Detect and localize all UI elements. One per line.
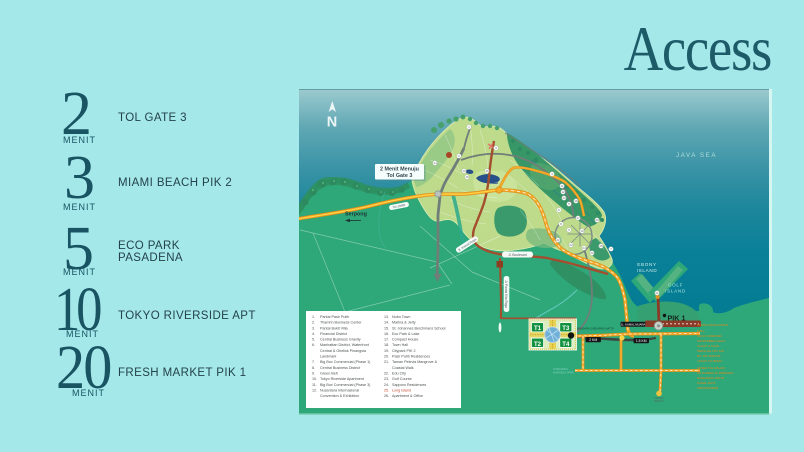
svg-text:16.: 16. (384, 332, 389, 336)
svg-text:Big Box Commercial (Phase 1): Big Box Commercial (Phase 1) (320, 360, 370, 364)
svg-text:Central Business Gravity: Central Business Gravity (320, 338, 361, 342)
svg-text:JL. KAMAL MUARA: JL. KAMAL MUARA (621, 323, 646, 327)
svg-text:Nusantara Internasional: Nusantara Internasional (320, 388, 359, 392)
svg-text:4.: 4. (312, 332, 315, 336)
svg-text:PIK 1: PIK 1 (668, 314, 686, 323)
svg-text:Financial District: Financial District (320, 332, 347, 336)
svg-text:T3: T3 (562, 326, 570, 332)
svg-text:SOEWARNA: SOEWARNA (553, 367, 568, 371)
svg-text:Jl. Pantai Kita Raya: Jl. Pantai Kita Raya (504, 280, 508, 308)
svg-text:Marina & Jetty: Marina & Jetty (392, 321, 416, 325)
svg-text:22.: 22. (384, 372, 389, 376)
svg-text:AKSES TOL DALAM: AKSES TOL DALAM (697, 366, 725, 370)
svg-text:15.: 15. (384, 326, 389, 330)
svg-text:18: 18 (574, 199, 578, 203)
svg-text:26.: 26. (384, 394, 389, 398)
svg-text:18.: 18. (384, 343, 389, 347)
svg-text:Convention & Exhibition: Convention & Exhibition (320, 394, 359, 398)
svg-text:19.: 19. (384, 349, 389, 353)
svg-text:10.: 10. (312, 377, 317, 381)
svg-text:Compact House: Compact House (392, 338, 418, 342)
svg-text:17: 17 (576, 216, 580, 220)
svg-text:2 Menit Menuju: 2 Menit Menuju (380, 167, 419, 173)
svg-text:Pantai Bukit Villa: Pantai Bukit Villa (320, 326, 349, 330)
svg-text:6.: 6. (312, 343, 315, 347)
svg-text:Pasir Putih Residences: Pasir Putih Residences (392, 355, 430, 359)
svg-text:KAMAL RAYA: KAMAL RAYA (697, 381, 716, 385)
svg-text:Town Hall: Town Hall (392, 343, 408, 347)
svg-text:Taman Pelevia Mangrove &: Taman Pelevia Mangrove & (392, 360, 438, 364)
svg-text:Landmark: Landmark (320, 355, 337, 359)
svg-text:Central Business District: Central Business District (320, 366, 360, 370)
svg-text:COAST & CAFE: COAST & CAFE (697, 344, 719, 348)
svg-text:GOLF: GOLF (668, 283, 683, 288)
svg-text:Serpong: Serpong (345, 212, 367, 218)
svg-text:Citypark PIK 2: Citypark PIK 2 (392, 349, 416, 353)
svg-text:23.: 23. (384, 377, 389, 381)
svg-text:APARTEMEN GOLD: APARTEMEN GOLD (697, 339, 726, 343)
svg-text:26: 26 (595, 218, 599, 222)
svg-text:Central & Obelisk Pinangsia: Central & Obelisk Pinangsia (320, 349, 367, 353)
svg-text:10: 10 (462, 169, 466, 173)
svg-text:Golf Course: Golf Course (392, 377, 412, 381)
svg-text:11: 11 (560, 184, 563, 188)
svg-text:23: 23 (569, 243, 573, 247)
svg-text:25: 25 (599, 244, 603, 248)
svg-text:Long Island: Long Island (392, 388, 411, 392)
svg-text:3.: 3. (312, 326, 315, 330)
svg-text:SOEKARNO HATTA: SOEKARNO HATTA (697, 376, 724, 380)
svg-text:15: 15 (465, 175, 469, 179)
svg-text:20: 20 (590, 251, 594, 255)
svg-text:14: 14 (433, 161, 437, 165)
svg-text:11.: 11. (312, 383, 317, 387)
svg-text:24: 24 (582, 246, 586, 250)
svg-text:Apartment & Office: Apartment & Office (392, 394, 423, 398)
svg-text:JAVA SEA: JAVA SEA (676, 152, 717, 159)
svg-text:SEKOLAH TZU CHI: SEKOLAH TZU CHI (697, 349, 724, 353)
svg-text:16: 16 (485, 169, 489, 173)
svg-text:MALL: MALL (697, 329, 705, 333)
svg-text:BUSINESS PARK: BUSINESS PARK (553, 370, 574, 374)
svg-text:Nubu Town: Nubu Town (392, 315, 410, 319)
svg-text:12: 12 (561, 190, 565, 194)
svg-text:9.: 9. (312, 372, 315, 376)
svg-text:12.: 12. (312, 388, 317, 392)
svg-text:Manhattan District, Waterfront: Manhattan District, Waterfront (320, 343, 369, 347)
svg-text:St. Johannes Berchmans School: St. Johannes Berchmans School (392, 326, 446, 330)
svg-text:T4: T4 (562, 342, 570, 348)
svg-text:24.: 24. (384, 383, 389, 387)
svg-text:Big Box Commercial (Phase 3): Big Box Commercial (Phase 3) (320, 383, 370, 387)
svg-text:2 KM: 2 KM (589, 338, 597, 342)
svg-text:RS. PIK AVENUE: RS. PIK AVENUE (697, 354, 720, 358)
svg-text:7.: 7. (312, 360, 315, 364)
svg-text:14.: 14. (384, 321, 389, 325)
svg-text:Thamrin Business Center: Thamrin Business Center (320, 321, 362, 325)
svg-text:Pantai Pasir Putih: Pantai Pasir Putih (320, 315, 349, 319)
svg-text:Tol Gate 3: Tol Gate 3 (387, 173, 413, 179)
svg-text:T1: T1 (534, 326, 542, 332)
svg-text:5.: 5. (312, 338, 315, 342)
svg-text:BANDARA SOEKARNO-HATTA: BANDARA SOEKARNO-HATTA (577, 327, 614, 331)
svg-text:YACHT CLUB BAY: YACHT CLUB BAY (697, 359, 722, 363)
svg-text:RUKO CORDOBA: RUKO CORDOBA (697, 334, 722, 338)
svg-text:13: 13 (562, 196, 566, 200)
svg-text:Eco Park & Lake: Eco Park & Lake (392, 332, 419, 336)
svg-text:Jl. Boulevard: Jl. Boulevard (508, 253, 527, 257)
svg-text:21: 21 (655, 291, 659, 295)
svg-text:ISLAND: ISLAND (637, 268, 658, 273)
svg-text:CENGKARENG: CENGKARENG (697, 386, 719, 390)
svg-text:21.: 21. (384, 360, 389, 364)
svg-text:SEDAYU: SEDAYU (654, 400, 664, 403)
svg-text:19: 19 (580, 229, 584, 233)
svg-text:8.: 8. (312, 366, 315, 370)
svg-text:22: 22 (556, 238, 560, 242)
svg-text:N: N (327, 115, 337, 131)
svg-text:T2: T2 (534, 342, 542, 348)
svg-text:2.: 2. (312, 321, 315, 325)
svg-text:17.: 17. (384, 338, 389, 342)
svg-text:1.: 1. (312, 315, 315, 319)
svg-text:Sapporo Residences: Sapporo Residences (392, 383, 426, 387)
svg-text:KOTA MENUJU BANDARA: KOTA MENUJU BANDARA (697, 371, 733, 375)
svg-text:25.: 25. (384, 388, 389, 392)
svg-text:EBONY: EBONY (637, 262, 657, 267)
svg-text:Green Belt: Green Belt (320, 372, 338, 376)
svg-text:PANTAI INDAH KAPUK: PANTAI INDAH KAPUK (697, 323, 729, 327)
svg-text:20.: 20. (384, 355, 389, 359)
svg-text:Tokyo Riverside Apartment: Tokyo Riverside Apartment (320, 377, 364, 381)
svg-text:Coastal Walk: Coastal Walk (392, 366, 414, 370)
svg-text:ISLAND: ISLAND (665, 289, 686, 294)
svg-text:13.: 13. (384, 315, 389, 319)
svg-text:Edu City: Edu City (392, 372, 406, 376)
svg-text:1,5 KM: 1,5 KM (636, 339, 647, 343)
